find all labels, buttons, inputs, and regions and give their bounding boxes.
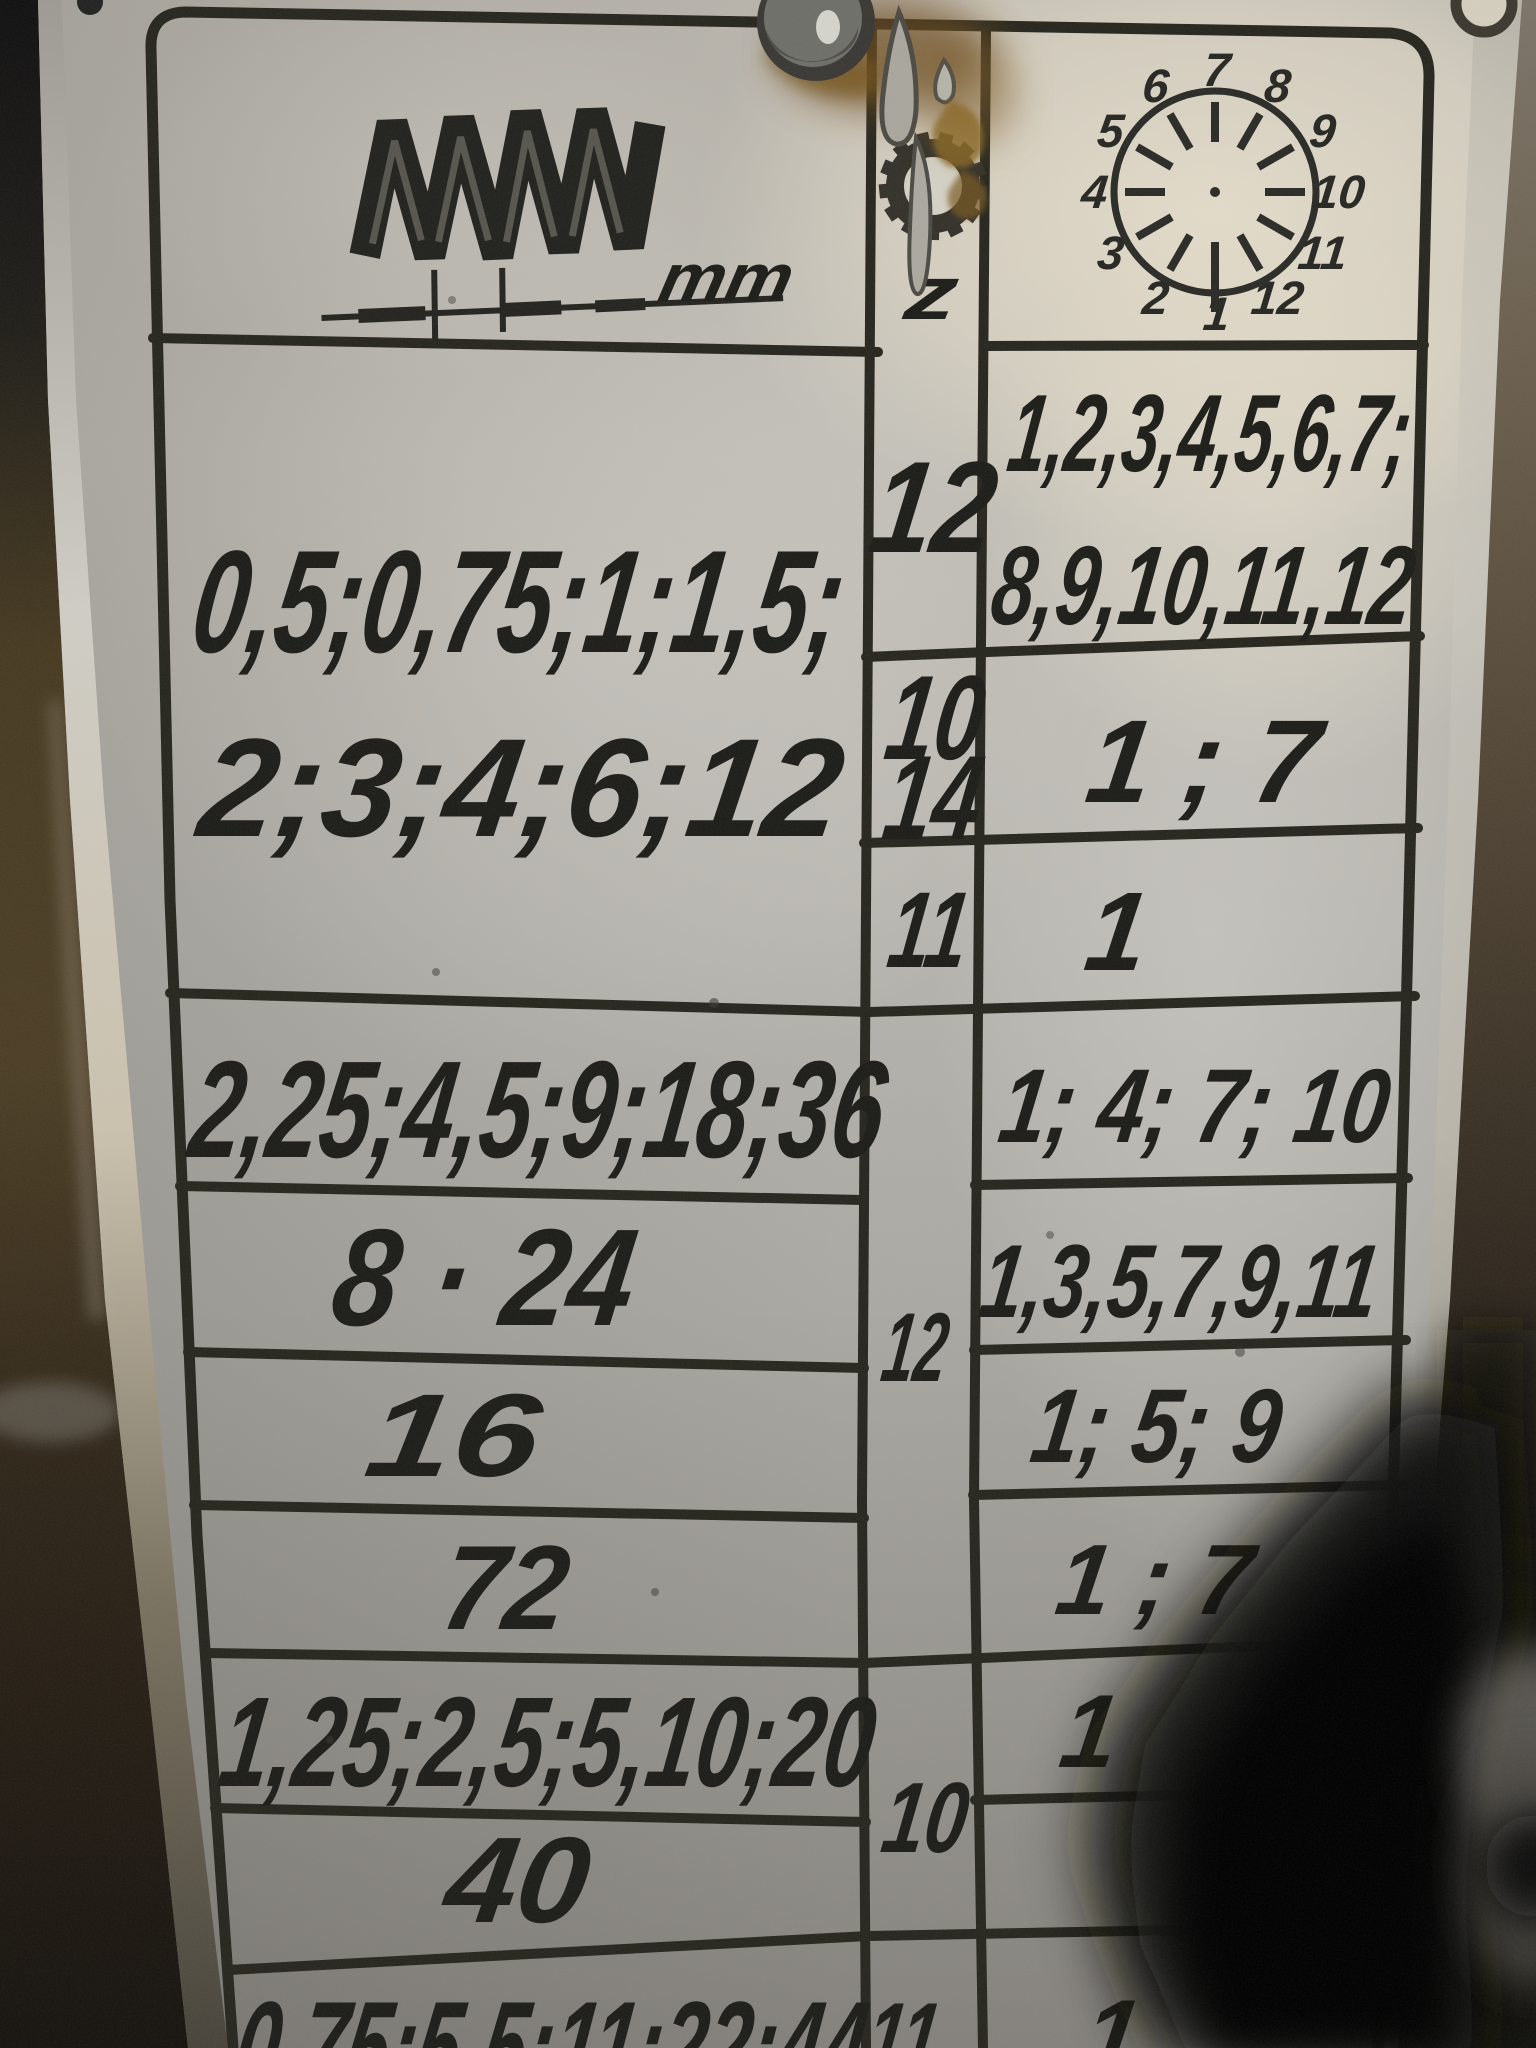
- svg-text:1,3,5,7,9,11: 1,3,5,7,9,11: [974, 1223, 1386, 1339]
- svg-text:1,2,3,4,5,6,7;: 1,2,3,4,5,6,7;: [1002, 372, 1419, 494]
- svg-text:mm: mm: [653, 240, 801, 316]
- svg-text:12: 12: [863, 435, 1005, 580]
- svg-text:2,25;4,5;9;18;36: 2,25;4,5;9;18;36: [180, 1033, 896, 1187]
- svg-text:2;3;4;6;12: 2;3;4;6;12: [188, 710, 853, 866]
- svg-text:10: 10: [1310, 165, 1368, 218]
- svg-text:1; 4; 7; 10: 1; 4; 7; 10: [993, 1047, 1398, 1164]
- svg-text:12: 12: [1249, 271, 1307, 324]
- svg-text:1: 1: [1201, 287, 1233, 340]
- svg-text:0,75;5,5;11;22;44: 0,75;5,5;11;22;44: [226, 1975, 876, 2048]
- svg-text:1; 5; 9: 1; 5; 9: [1025, 1367, 1290, 1484]
- svg-text:2: 2: [1139, 271, 1172, 324]
- svg-text:72: 72: [434, 1521, 577, 1655]
- svg-text:10: 10: [876, 1762, 976, 1873]
- svg-text:9: 9: [1307, 104, 1339, 157]
- svg-text:8 · 24: 8 · 24: [324, 1201, 646, 1355]
- svg-text:4: 4: [1078, 165, 1111, 218]
- svg-text:40: 40: [434, 1812, 598, 1948]
- svg-text:0,5;0,75;1;1,5;: 0,5;0,75;1;1,5;: [184, 521, 855, 684]
- svg-text:14: 14: [876, 731, 991, 865]
- svg-text:16: 16: [358, 1371, 550, 1502]
- svg-text:1 ; 7: 1 ; 7: [1079, 697, 1332, 828]
- svg-text:3: 3: [1095, 226, 1127, 279]
- svg-text:8,9,10,11,12: 8,9,10,11,12: [985, 523, 1423, 648]
- svg-text:1,25;2,5;5,10;20: 1,25;2,5;5,10;20: [212, 1672, 884, 1814]
